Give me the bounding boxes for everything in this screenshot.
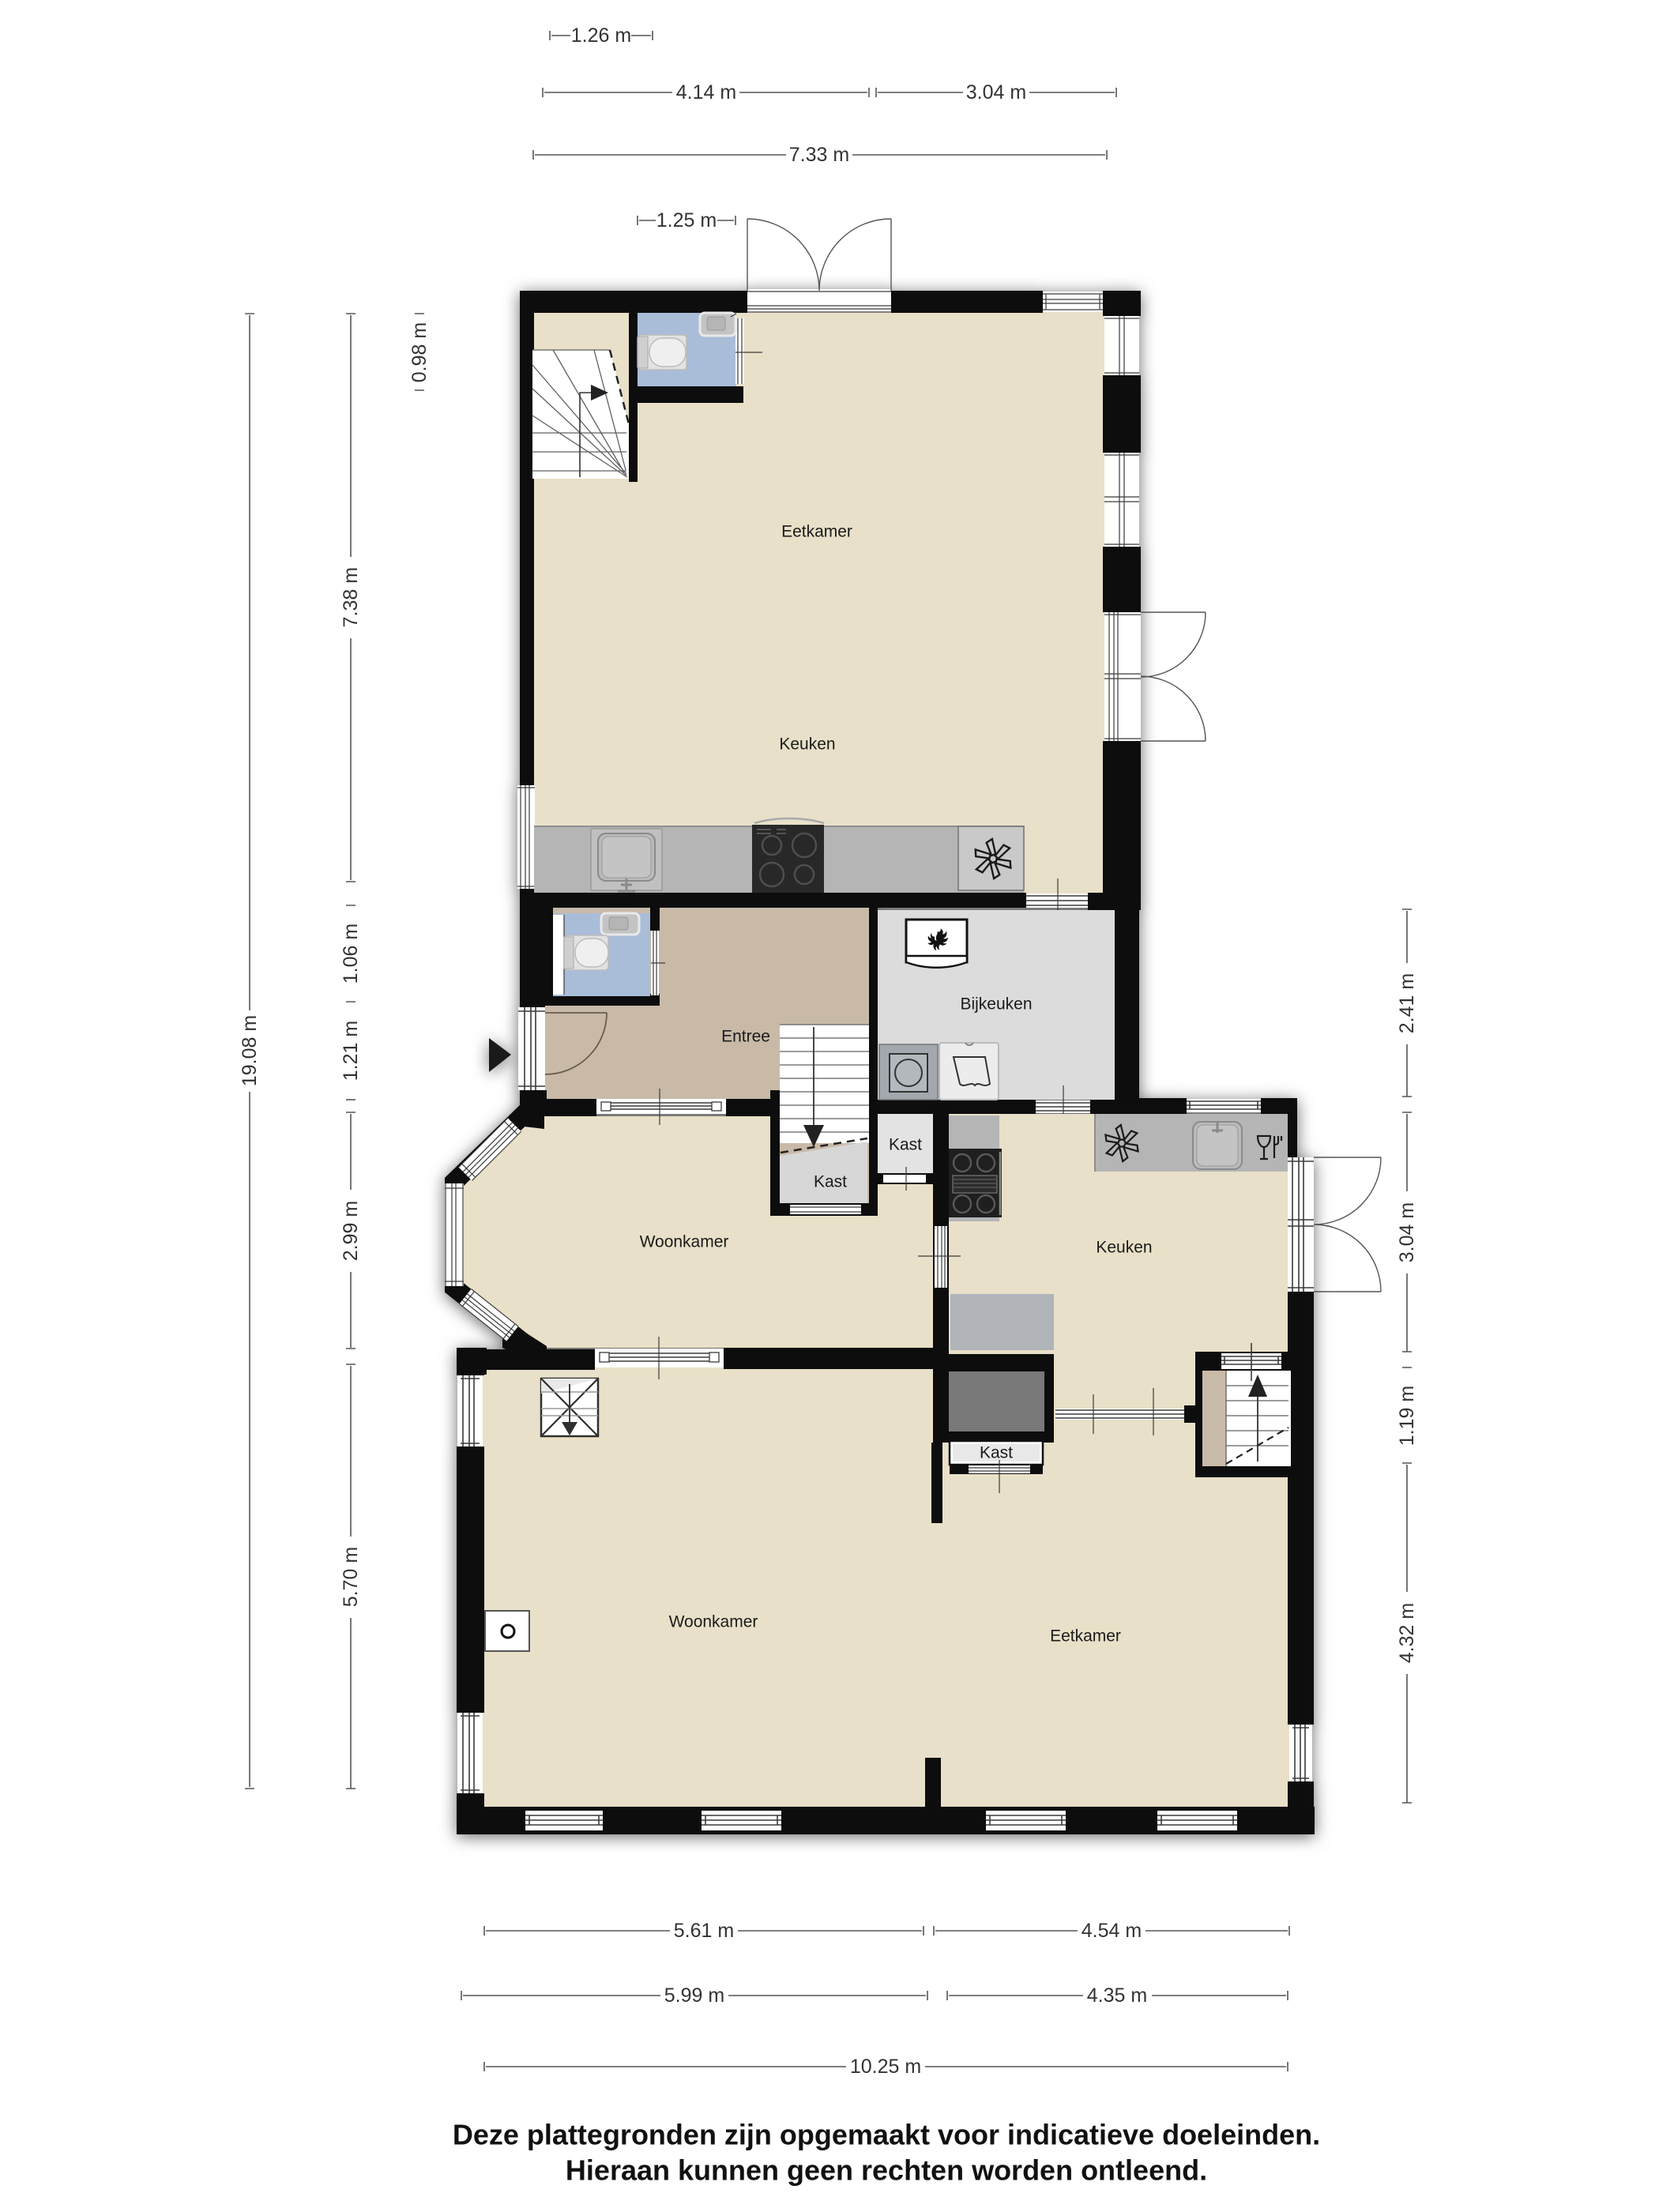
svg-text:7.38 m: 7.38 m bbox=[340, 567, 362, 627]
svg-text:Kast: Kast bbox=[889, 1136, 922, 1154]
svg-text:Woonkamer: Woonkamer bbox=[669, 1613, 758, 1631]
svg-text:4.32 m: 4.32 m bbox=[1396, 1603, 1418, 1663]
svg-text:7.33 m: 7.33 m bbox=[789, 144, 849, 166]
svg-text:5.70 m: 5.70 m bbox=[340, 1547, 362, 1607]
svg-text:Deze plattegronden zijn opgema: Deze plattegronden zijn opgemaakt voor i… bbox=[453, 2119, 1320, 2151]
svg-text:4.35 m: 4.35 m bbox=[1087, 1984, 1147, 2007]
svg-text:10.25 m: 10.25 m bbox=[850, 2056, 921, 2078]
svg-text:Eetkamer: Eetkamer bbox=[781, 523, 852, 541]
svg-text:1.25 m: 1.25 m bbox=[656, 209, 717, 231]
svg-text:19.08 m: 19.08 m bbox=[239, 1015, 261, 1086]
svg-text:1.19 m: 1.19 m bbox=[1396, 1386, 1418, 1446]
svg-text:Bijkeuken: Bijkeuken bbox=[960, 995, 1032, 1014]
svg-text:4.54 m: 4.54 m bbox=[1082, 1920, 1142, 1942]
svg-text:Keuken: Keuken bbox=[779, 735, 835, 754]
svg-text:Kast: Kast bbox=[814, 1173, 847, 1191]
svg-text:1.21 m: 1.21 m bbox=[340, 1021, 362, 1081]
svg-text:5.99 m: 5.99 m bbox=[664, 1984, 724, 2007]
svg-text:Woonkamer: Woonkamer bbox=[640, 1233, 729, 1251]
svg-text:Keuken: Keuken bbox=[1096, 1239, 1152, 1257]
svg-text:2.99 m: 2.99 m bbox=[340, 1201, 362, 1261]
svg-text:3.04 m: 3.04 m bbox=[966, 81, 1026, 103]
svg-text:4.14 m: 4.14 m bbox=[676, 81, 736, 103]
svg-text:0.98 m: 0.98 m bbox=[408, 322, 431, 382]
svg-text:1.06 m: 1.06 m bbox=[340, 924, 362, 984]
svg-text:Hieraan kunnen geen rechten wo: Hieraan kunnen geen rechten worden ontle… bbox=[566, 2154, 1207, 2187]
svg-text:1.26 m: 1.26 m bbox=[571, 24, 631, 47]
svg-text:3.04 m: 3.04 m bbox=[1396, 1202, 1418, 1262]
svg-text:Kast: Kast bbox=[980, 1444, 1013, 1462]
svg-text:5.61 m: 5.61 m bbox=[674, 1920, 734, 1942]
svg-text:Eetkamer: Eetkamer bbox=[1050, 1627, 1121, 1646]
svg-text:2.41 m: 2.41 m bbox=[1396, 973, 1418, 1033]
svg-text:Entree: Entree bbox=[721, 1028, 770, 1046]
